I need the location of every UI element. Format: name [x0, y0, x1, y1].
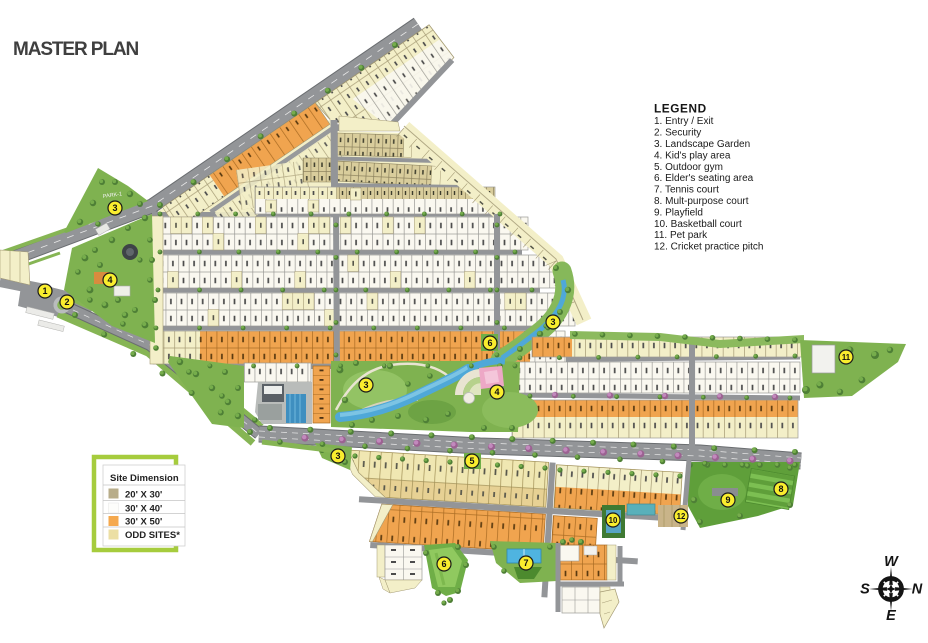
svg-text:S: S — [860, 582, 870, 598]
svg-text:2: 2 — [64, 297, 69, 307]
svg-text:9. Playfield: 9. Playfield — [654, 207, 703, 218]
svg-text:N: N — [912, 582, 923, 598]
svg-text:5: 5 — [469, 456, 474, 466]
svg-text:4. Kid's play area: 4. Kid's play area — [654, 150, 731, 161]
svg-text:W: W — [884, 554, 899, 570]
svg-text:30' X 40': 30' X 40' — [125, 504, 162, 515]
svg-text:7: 7 — [523, 558, 528, 568]
svg-text:6: 6 — [487, 338, 492, 348]
svg-text:E: E — [886, 608, 897, 624]
svg-text:3: 3 — [335, 451, 340, 461]
svg-text:6. Elder's seating area: 6. Elder's seating area — [654, 173, 754, 184]
svg-text:7. Tennis court: 7. Tennis court — [654, 185, 719, 196]
svg-text:1: 1 — [42, 286, 47, 296]
svg-text:3: 3 — [363, 380, 368, 390]
svg-text:ODD SITES*: ODD SITES* — [125, 530, 180, 541]
svg-text:1. Entry / Exit: 1. Entry / Exit — [654, 116, 714, 127]
svg-text:5. Outdoor gym: 5. Outdoor gym — [654, 162, 723, 173]
svg-text:8. Mult-purpose court: 8. Mult-purpose court — [654, 196, 749, 207]
svg-text:12. Cricket practice pitch: 12. Cricket practice pitch — [654, 242, 764, 253]
svg-text:11: 11 — [842, 353, 851, 362]
svg-text:10. Basketball court: 10. Basketball court — [654, 219, 742, 230]
svg-text:4: 4 — [494, 387, 499, 397]
svg-text:LEGEND: LEGEND — [654, 102, 707, 116]
svg-text:10: 10 — [609, 516, 618, 525]
svg-text:6: 6 — [441, 559, 446, 569]
svg-text:11. Pet park: 11. Pet park — [654, 230, 708, 241]
svg-text:12: 12 — [677, 512, 686, 521]
svg-text:2. Security: 2. Security — [654, 128, 701, 139]
svg-text:30' X 50': 30' X 50' — [125, 517, 162, 528]
svg-text:3: 3 — [550, 317, 555, 327]
svg-text:3. Landscape Garden: 3. Landscape Garden — [654, 139, 750, 150]
svg-text:9: 9 — [725, 495, 730, 505]
svg-text:8: 8 — [778, 484, 783, 494]
svg-text:20' X 30': 20' X 30' — [125, 490, 162, 501]
svg-text:4: 4 — [107, 275, 112, 285]
svg-text:Site Dimension: Site Dimension — [110, 473, 179, 484]
svg-text:3: 3 — [112, 203, 117, 213]
svg-text:MASTER PLAN: MASTER PLAN — [13, 39, 139, 60]
